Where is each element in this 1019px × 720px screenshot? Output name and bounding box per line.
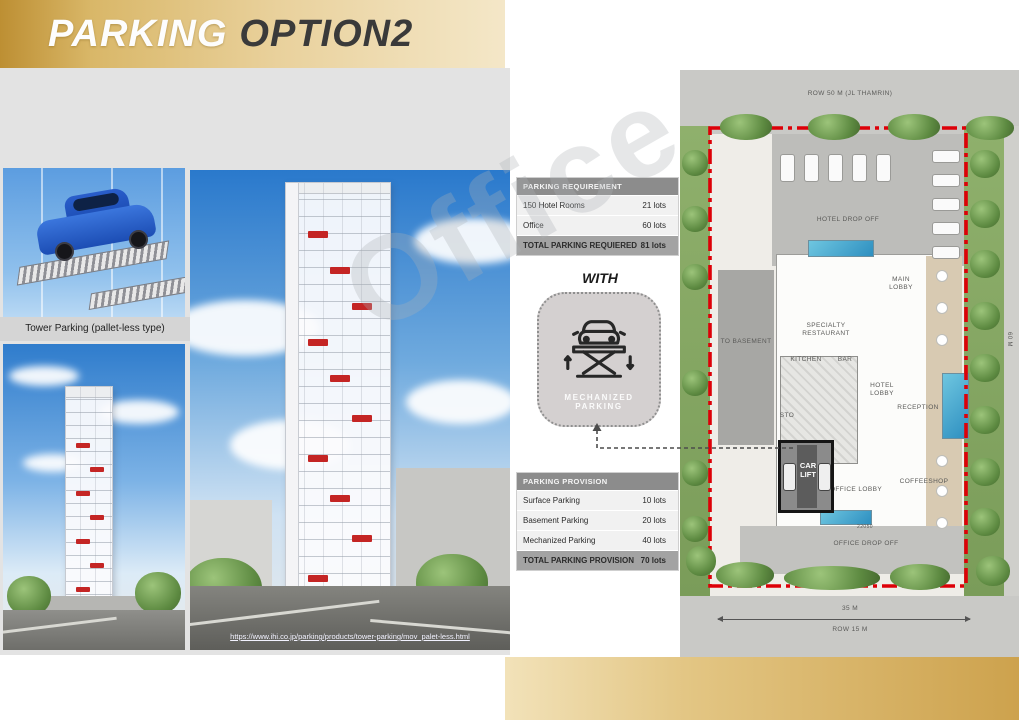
- tower-floors: [286, 183, 390, 635]
- dim-arrow-right: [965, 616, 971, 622]
- badge-label: MECHANIZED PARKING: [539, 393, 659, 411]
- kitchen-label: KITCHEN: [784, 356, 828, 364]
- row-value: 10 lots: [642, 496, 672, 505]
- tower-pillar: [286, 183, 299, 635]
- table-row: Surface Parking 10 lots: [517, 490, 678, 510]
- red-car: [308, 455, 328, 462]
- umbrella: [936, 302, 948, 314]
- parking-tower: [285, 182, 391, 636]
- tree: [682, 150, 708, 176]
- table-total-row: TOTAL PARKING PROVISION 70 lots: [517, 550, 678, 570]
- car-wheel: [55, 242, 74, 261]
- red-car: [76, 539, 90, 544]
- tree: [682, 206, 708, 232]
- tree: [970, 200, 1000, 228]
- parking-requirement-table: PARKING REQUIREMENT 150 Hotel Rooms 21 l…: [517, 178, 678, 255]
- site-plan: ROW 50 M (JL THAMRIN) 60 M TO BASEMENT H…: [680, 70, 1019, 660]
- red-car: [352, 303, 372, 310]
- road: [3, 610, 185, 650]
- dim-35m-label: 35 M: [820, 605, 880, 613]
- office-lobby-label: OFFICE LOBBY: [828, 486, 884, 494]
- total-label: TOTAL PARKING PROVISION: [523, 556, 634, 565]
- red-car: [90, 563, 104, 568]
- photo-palletless-mechanism: [3, 168, 185, 317]
- umbrella: [936, 455, 948, 467]
- basement-ramp: [718, 270, 774, 445]
- car-lift-label: CAR LIFT: [795, 461, 821, 479]
- umbrella: [936, 270, 948, 282]
- row-15m-label: ROW 15 M: [810, 626, 890, 634]
- bar-label: BAR: [832, 356, 858, 364]
- row-value: 40 lots: [642, 536, 672, 545]
- parking-tower: [65, 386, 113, 620]
- parking-pallet: [89, 274, 185, 310]
- parked-car: [932, 246, 960, 259]
- with-label: WITH: [560, 270, 640, 286]
- table-row: Office 60 lots: [517, 215, 678, 235]
- tree: [784, 566, 880, 590]
- car-wheel: [129, 230, 148, 249]
- red-car: [76, 491, 90, 496]
- tree: [720, 114, 772, 140]
- tree: [682, 516, 708, 542]
- tree: [808, 114, 860, 140]
- row-value: 21 lots: [642, 201, 672, 210]
- dim-60m-label: 60 M: [998, 332, 1012, 347]
- tree: [970, 406, 1000, 434]
- gold-footer-band: [505, 657, 1019, 720]
- parked-car: [876, 154, 891, 182]
- title-bar: PARKING OPTION2: [0, 0, 505, 68]
- tree: [888, 114, 940, 140]
- curb-line: [190, 600, 379, 627]
- mechanized-parking-badge: MECHANIZED PARKING: [537, 292, 661, 427]
- red-car: [352, 415, 372, 422]
- tree: [970, 150, 1000, 178]
- row-label: Office: [523, 221, 544, 230]
- tree: [970, 458, 1000, 486]
- main-lobby-label: MAIN LOBBY: [883, 276, 919, 293]
- reception-label: RECEPTION: [892, 404, 944, 412]
- tree: [682, 264, 708, 290]
- tree: [682, 460, 708, 486]
- total-label: TOTAL PARKING REQUIERED: [523, 241, 637, 250]
- pool-top: [808, 240, 874, 257]
- walkway-right: [1004, 126, 1019, 600]
- row-value: 20 lots: [642, 516, 672, 525]
- specialty-restaurant-label: SPECIALTY RESTAURANT: [792, 322, 860, 339]
- cloud: [414, 218, 510, 264]
- parked-car: [932, 174, 960, 187]
- red-car: [76, 443, 90, 448]
- dim-arrow-left: [717, 616, 723, 622]
- tower-floors: [66, 387, 112, 619]
- parking-provision-table: PARKING PROVISION Surface Parking 10 lot…: [517, 473, 678, 570]
- red-car: [330, 267, 350, 274]
- cloud: [406, 380, 510, 424]
- red-car: [76, 587, 90, 592]
- table-header: PARKING REQUIREMENT: [517, 178, 678, 195]
- red-car: [90, 515, 104, 520]
- tree: [682, 370, 708, 396]
- parked-car: [932, 150, 960, 163]
- parked-car: [828, 154, 843, 182]
- table-row: 150 Hotel Rooms 21 lots: [517, 195, 678, 215]
- to-basement-label: TO BASEMENT: [720, 338, 772, 346]
- red-car: [90, 467, 104, 472]
- parked-car: [852, 154, 867, 182]
- tree: [890, 564, 950, 590]
- page-title: PARKING: [48, 13, 227, 56]
- total-value: 81 lots: [641, 241, 672, 250]
- red-car: [308, 231, 328, 238]
- tree: [976, 556, 1010, 586]
- table-row: Mechanized Parking 40 lots: [517, 530, 678, 550]
- parked-car: [932, 222, 960, 235]
- umbrella: [936, 334, 948, 346]
- table-row: Basement Parking 20 lots: [517, 510, 678, 530]
- parked-car: [932, 198, 960, 211]
- photo-tower-small: [3, 344, 185, 650]
- red-car: [308, 339, 328, 346]
- tree: [966, 116, 1014, 140]
- tree: [970, 250, 1000, 278]
- pool-right: [942, 373, 969, 439]
- table-header: PARKING PROVISION: [517, 473, 678, 490]
- red-car: [330, 375, 350, 382]
- hotel-lobby-label: HOTEL LOBBY: [865, 382, 899, 399]
- row-label: Mechanized Parking: [523, 536, 595, 545]
- tree: [970, 508, 1000, 536]
- photo-tower-large: https://www.ihi.co.jp/parking/products/t…: [190, 170, 510, 650]
- row-label: Surface Parking: [523, 496, 580, 505]
- office-dropoff-label: OFFICE DROP OFF: [806, 540, 926, 548]
- dim-22050-label: 22050: [830, 524, 900, 531]
- row-value: 60 lots: [642, 221, 672, 230]
- tree: [686, 546, 716, 576]
- umbrella: [936, 517, 948, 529]
- source-url-link[interactable]: https://www.ihi.co.jp/parking/products/t…: [190, 632, 510, 641]
- red-car: [308, 575, 328, 582]
- slide: PARKING OPTION2 Tower Parking (pallet-le…: [0, 0, 1019, 720]
- parked-car: [780, 154, 795, 182]
- page-title-option: OPTION2: [239, 13, 413, 56]
- hotel-dropoff-label: HOTEL DROP OFF: [788, 216, 908, 224]
- dimension-line-35m: [718, 619, 970, 620]
- parked-car: [804, 154, 819, 182]
- cloud: [9, 366, 79, 386]
- total-value: 70 lots: [641, 556, 672, 565]
- curb-line: [3, 617, 117, 635]
- row-label: 150 Hotel Rooms: [523, 201, 585, 210]
- tree: [970, 354, 1000, 382]
- car-lift-icon: [560, 306, 638, 388]
- umbrella: [936, 485, 948, 497]
- row-label: Basement Parking: [523, 516, 588, 525]
- tree: [970, 302, 1000, 330]
- connector-arrow: [517, 420, 817, 460]
- tree: [135, 572, 181, 614]
- table-total-row: TOTAL PARKING REQUIERED 81 lots: [517, 235, 678, 255]
- photo-caption: Tower Parking (pallet-less type): [0, 317, 190, 341]
- red-car: [330, 495, 350, 502]
- tree: [716, 562, 774, 588]
- red-car: [352, 535, 372, 542]
- row-50m-label: ROW 50 M (JL THAMRIN): [760, 90, 940, 98]
